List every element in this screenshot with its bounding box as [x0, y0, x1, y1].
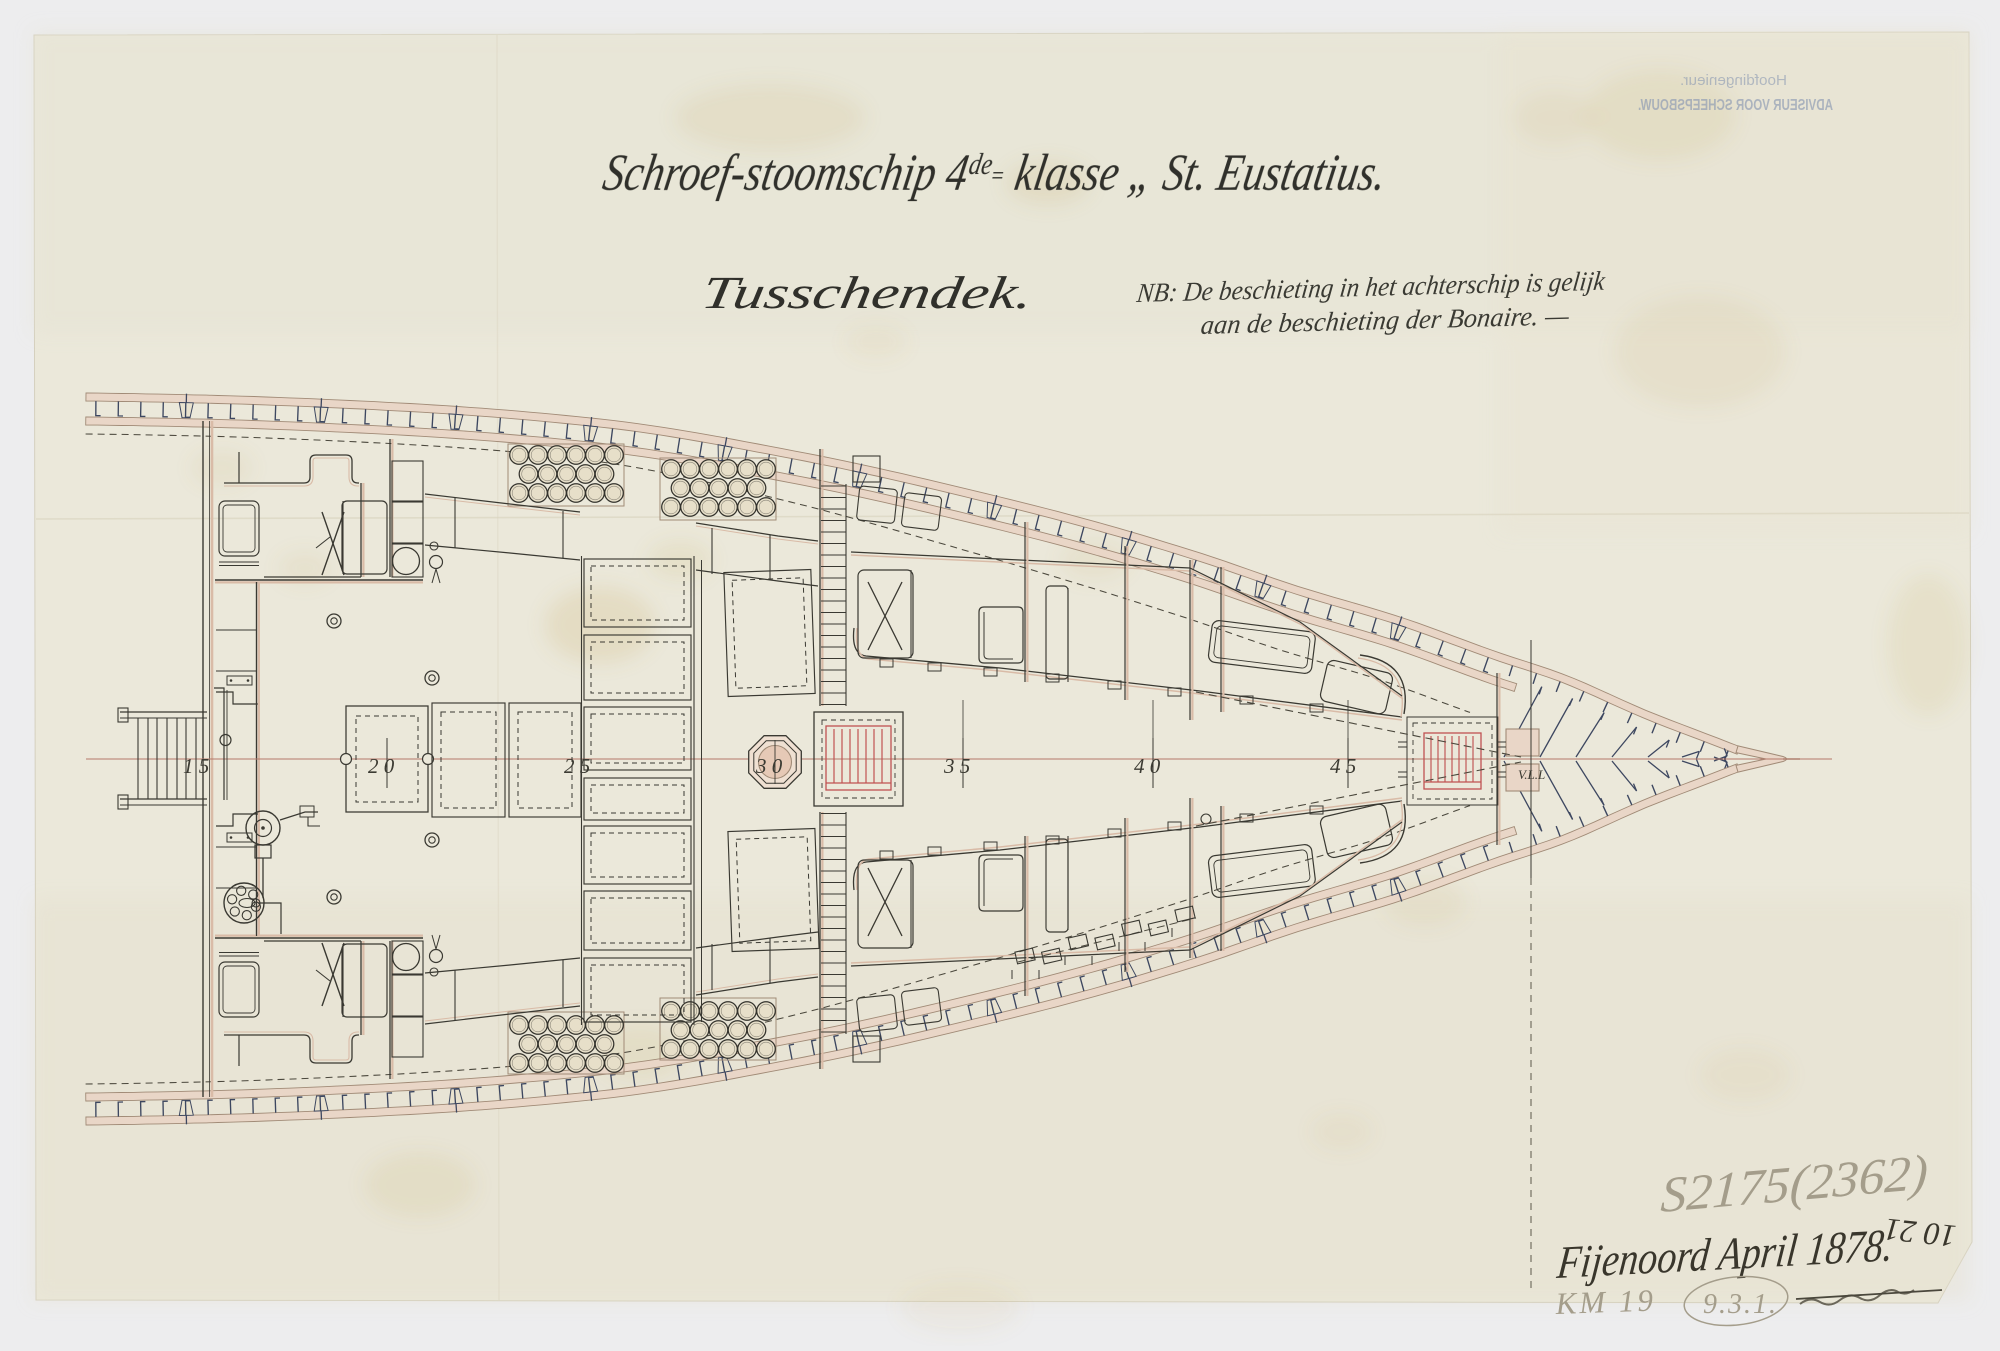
svg-text:10 21: 10 21	[1882, 1211, 1957, 1254]
svg-text:2 5: 2 5	[564, 754, 590, 778]
svg-text:2 0: 2 0	[368, 754, 395, 778]
svg-text:4 5: 4 5	[1330, 754, 1356, 778]
svg-text:1 5: 1 5	[183, 754, 209, 778]
svg-text:V.L.L: V.L.L	[1518, 767, 1545, 782]
svg-text:Tusschendek.: Tusschendek.	[698, 268, 1037, 319]
svg-text:3 0: 3 0	[755, 754, 783, 778]
svg-text:4 0: 4 0	[1134, 754, 1161, 778]
svg-text:KM 19: KM 19	[1554, 1283, 1656, 1322]
svg-text:ADVISEUR VOOR SCHEEPSBOUW.: ADVISEUR VOOR SCHEEPSBOUW.	[1638, 97, 1833, 114]
svg-text:3 5: 3 5	[943, 754, 970, 778]
svg-text:Hoofdingenieur.: Hoofdingenieur.	[1680, 72, 1787, 89]
svg-text:9.3.1.: 9.3.1.	[1703, 1289, 1778, 1320]
